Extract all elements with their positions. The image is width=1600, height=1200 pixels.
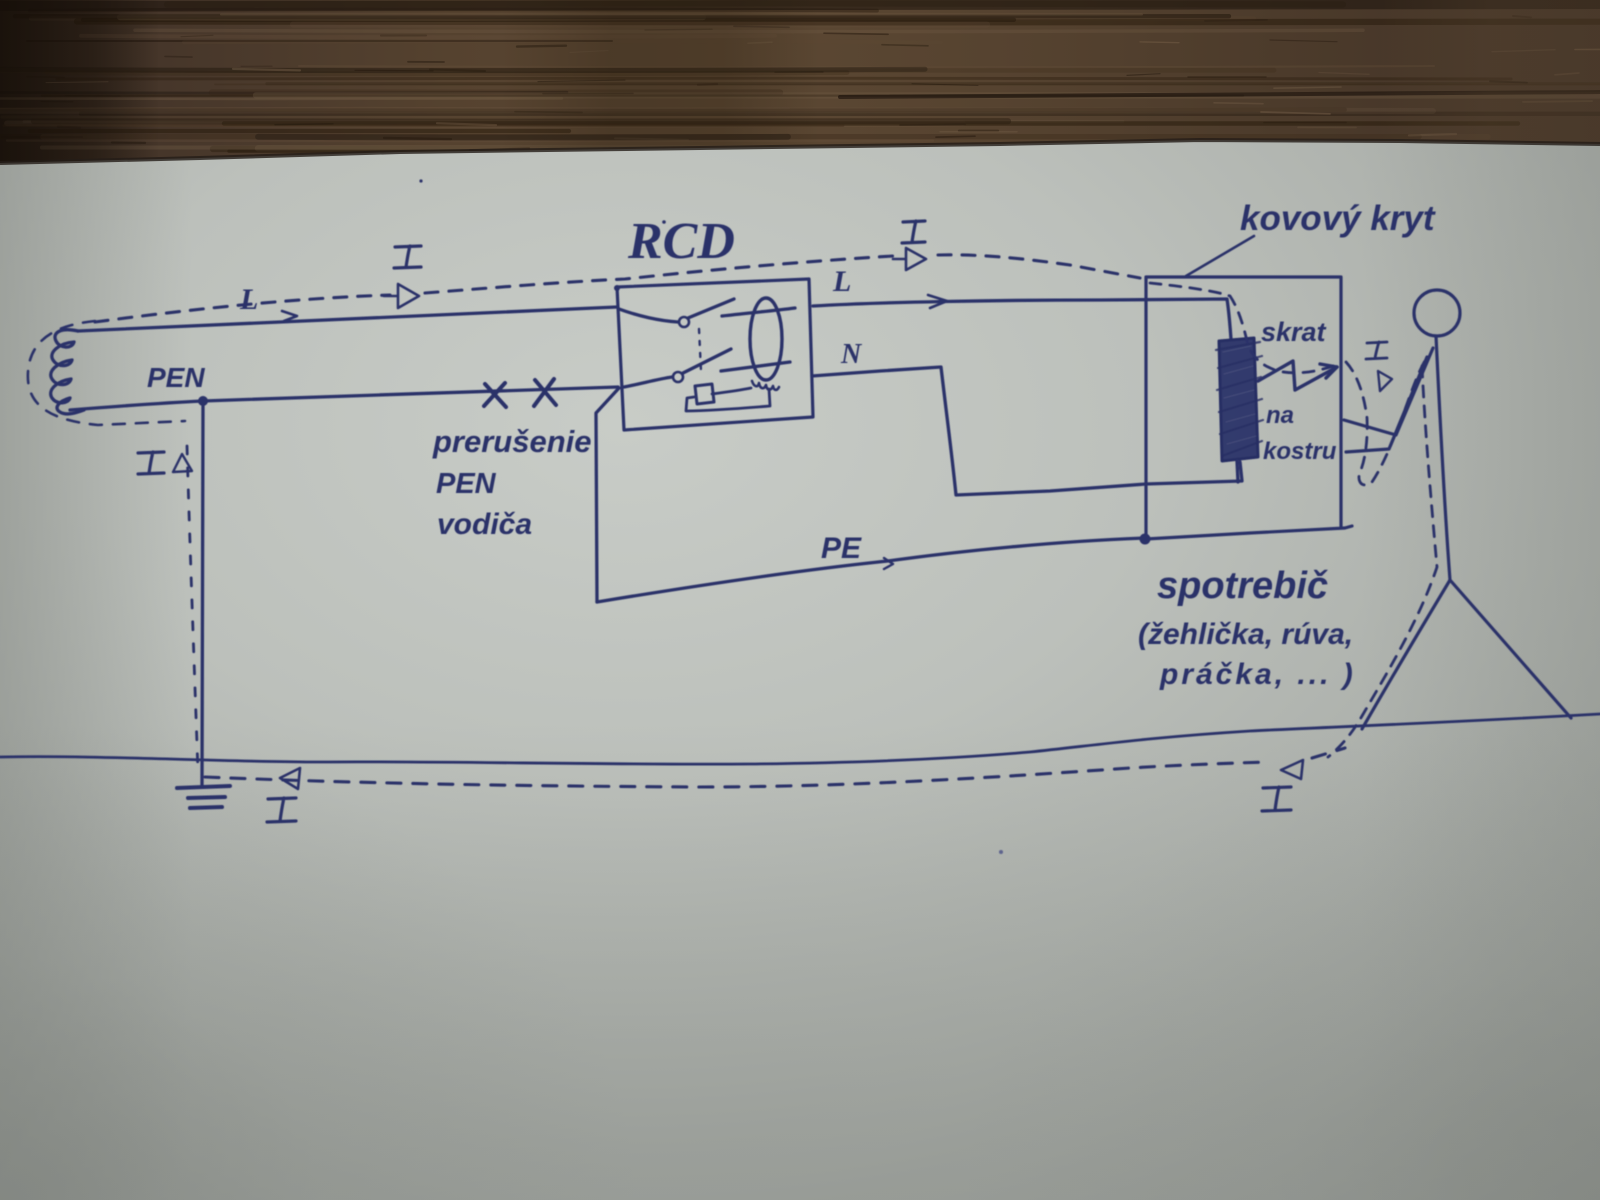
svg-text:práčka, ... ): práčka, ... ) [1159,658,1356,691]
svg-text:L: L [832,265,851,298]
svg-text:kovový kryt: kovový kryt [1240,199,1436,238]
svg-text:spotrebič: spotrebič [1157,565,1328,607]
svg-text:kostru: kostru [1263,438,1337,465]
svg-text:(žehlička, rúva,: (žehlička, rúva, [1138,618,1353,651]
svg-text:PE: PE [821,532,862,565]
svg-text:RCD: RCD [627,213,735,270]
svg-text:L: L [239,283,258,316]
svg-text:PEN: PEN [436,468,497,500]
svg-text:PEN: PEN [147,362,205,393]
svg-text:skrat: skrat [1261,317,1327,347]
svg-text:prerušenie: prerušenie [432,424,592,459]
svg-text:vodiča: vodiča [437,508,532,541]
svg-text:N: N [840,339,863,370]
svg-text:na: na [1266,402,1294,429]
